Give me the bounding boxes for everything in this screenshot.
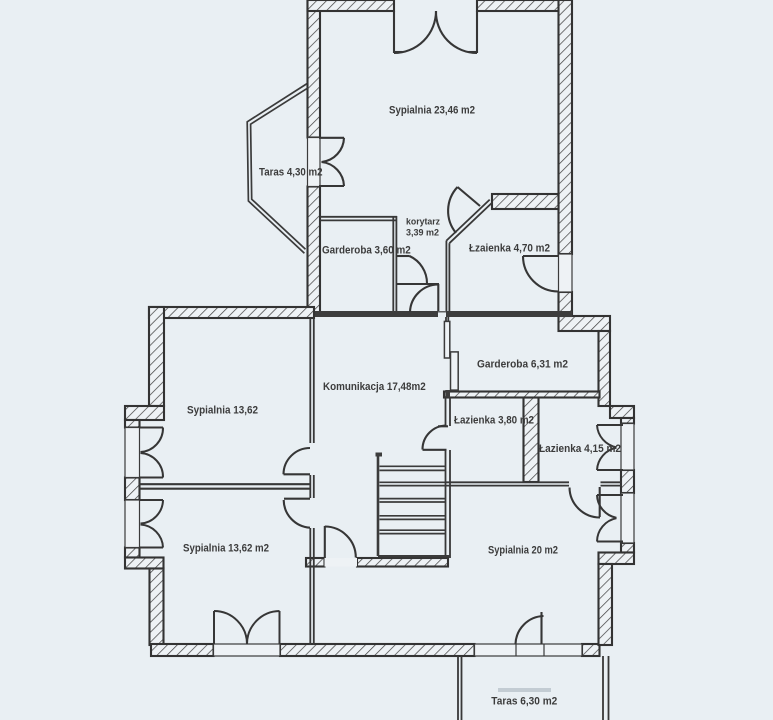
svg-text:Komunikacja 17,48m2: Komunikacja 17,48m2	[323, 381, 426, 393]
svg-text:Taras 6,30 m2: Taras 6,30 m2	[491, 696, 557, 708]
svg-text:Sypialnia 20 m2: Sypialnia 20 m2	[488, 545, 558, 557]
svg-text:Garderoba 3,60 m2: Garderoba 3,60 m2	[322, 244, 411, 256]
svg-text:Łzaienka 4,70 m2: Łzaienka 4,70 m2	[469, 243, 550, 255]
svg-text:Sypialnia 13,62: Sypialnia 13,62	[187, 405, 258, 417]
svg-text:Taras 4,30 m2: Taras 4,30 m2	[259, 167, 323, 179]
svg-text:Sypialnia 13,62 m2: Sypialnia 13,62 m2	[183, 543, 269, 555]
svg-text:Garderoba 6,31 m2: Garderoba 6,31 m2	[477, 359, 568, 371]
svg-text:korytarz: korytarz	[406, 217, 440, 228]
svg-text:Sypialnia 23,46 m2: Sypialnia 23,46 m2	[389, 105, 475, 117]
svg-text:3,39 m2: 3,39 m2	[406, 228, 439, 239]
svg-text:Łazienka 4,15 m2: Łazienka 4,15 m2	[539, 443, 621, 455]
svg-text:Łazienka 3,80 m2: Łazienka 3,80 m2	[454, 414, 534, 426]
